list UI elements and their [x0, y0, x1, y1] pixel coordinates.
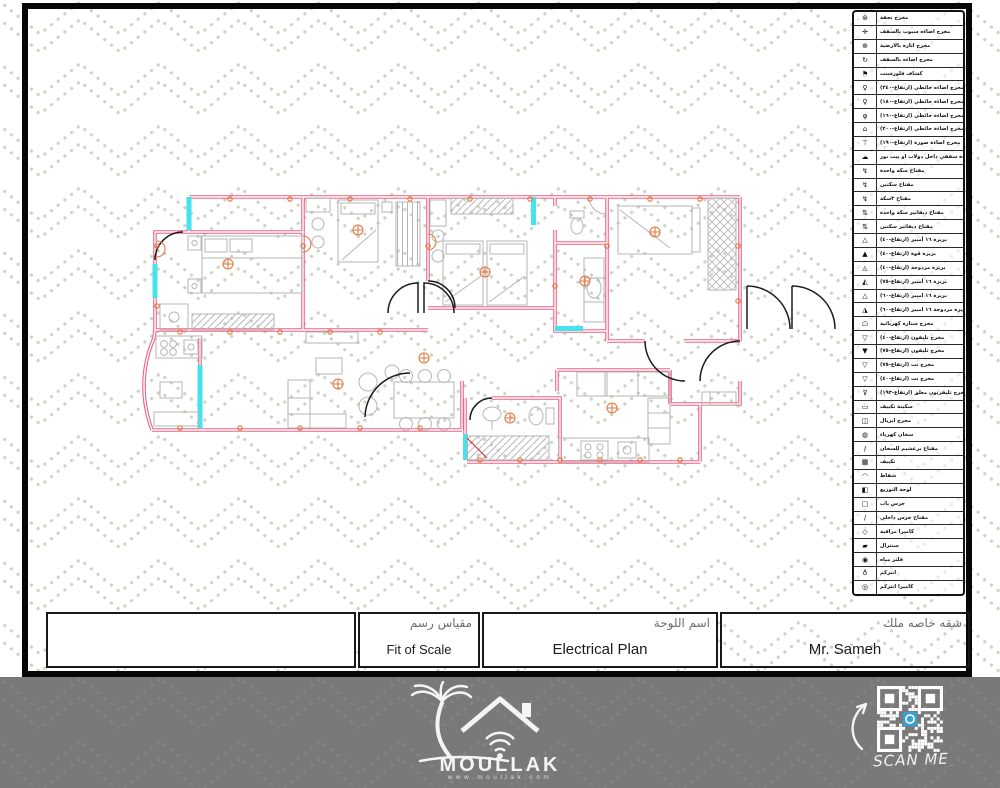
legend-label: بريزة قوة (ارتفاع-٤٠) [877, 248, 963, 261]
legend-row: ▲بريزة قوة (ارتفاع-٤٠) [854, 248, 963, 262]
aerial-outlet-icon: ◫ [854, 414, 877, 427]
legend-label: مخرج اضاءه حائطي (ارتفاع-٢٤٠) [877, 81, 963, 94]
legend-row: ⌂مخرج اضاءة حائطي (ارتفاع-٢٠٠) [854, 123, 963, 137]
legend-label: كاميرا مراقبة [877, 525, 963, 538]
owner-name: Mr. Sameh [722, 641, 968, 658]
legend-label: مخرج اضاءه بالسقف [877, 54, 963, 67]
legend-row: ▼مخرج تليفون (ارتفاع-٧٥) [854, 345, 963, 359]
legend-label: مخرج تليفزيون معلق (ارتفاع-١٩٣) [877, 387, 963, 400]
legend-row: ↯مفتاح سكتين [854, 179, 963, 193]
legend-label: مخرج انارة بالارضية [877, 40, 963, 53]
legend-row: ⊕مخرج انارة بالارضية [854, 40, 963, 54]
title-block-owner-cell: شقه خاصه ملك Mr. Sameh [720, 612, 970, 668]
legend-row: ↯مفتاح ٣سكة [854, 192, 963, 206]
switch-two-gang-icon: ↯ [854, 179, 877, 192]
legend-label: جرس باب [877, 498, 963, 511]
legend-row: ♀مخرج اضاءة حائطي (ارتفاع-١٨٠) [854, 95, 963, 109]
exhaust-fan-icon: ◠ [854, 470, 877, 483]
chandelier-outlet-icon: ⊛ [854, 12, 877, 25]
switch-one-gang-icon: ↯ [854, 165, 877, 178]
ac-isolator-icon: ▭ [854, 401, 877, 414]
legend-row: ◫مخرج ايريال [854, 414, 963, 428]
legend-row: ✛مخرج اضاءه سبوت بالسقف [854, 26, 963, 40]
legend-label: مخرج نت (ارتفاع-٤٠) [877, 373, 963, 386]
legend-label: مخرج ستارة كهربائية [877, 317, 963, 330]
legend-row: ▦تكييف [854, 456, 963, 470]
plan-furniture [154, 197, 736, 462]
central-icon: ▰ [854, 539, 877, 552]
sheet-name-value: Electrical Plan [484, 641, 716, 658]
double-socket-h40-icon: ◬ [854, 262, 877, 275]
legend-row: ⊤مخرج اضاءة صورة (ارتفاع-١٩٠) [854, 137, 963, 151]
legend-label: سخان كهرباء [877, 428, 963, 441]
legend-label: لوحة التوزيع [877, 484, 963, 497]
legend-label: مخرج تليفون (ارتفاع-٧٥) [877, 345, 963, 358]
phone-outlet-h75-icon: ▼ [854, 345, 877, 358]
legend-row: ◇كاميرا مراقبة [854, 525, 963, 539]
wall-sconce-symbol [157, 234, 436, 257]
fluorescent-lamp-icon: ⚑ [854, 68, 877, 81]
legend-row: ♁انتركم [854, 567, 963, 581]
curved-arrow-icon [846, 699, 880, 751]
owner-label-arabic: شقه خاصه ملك [884, 616, 962, 630]
legend-label: مفتاح سكتين [877, 179, 963, 192]
legend-label: مفتاح جرس داخلي [877, 512, 963, 525]
legend-label: كاميرا انتركم [877, 581, 963, 594]
legend-row: ☁مخرج اضاءة سقفي داخل دولاب او بيت نور [854, 151, 963, 165]
legend-row: △بريزة ١٦ امبير (ارتفاع-٦٠) [854, 290, 963, 304]
wall-light-200-icon: ⌂ [854, 123, 877, 136]
air-conditioner-icon: ▦ [854, 456, 877, 469]
legend-row: ⊛مخرج نجفة [854, 12, 963, 26]
legend-label: مفتاح ٣سكة [877, 192, 963, 205]
title-block-scale-cell: مقياس رسم Fit of Scale [358, 612, 480, 668]
moullak-logo: MOULLAK www.moullak.com [390, 681, 610, 781]
wall-light-160-icon: φ [854, 109, 877, 122]
legend-row: ◭بريزة ١٦ أمبير (ارتفاع-٧٥) [854, 276, 963, 290]
electric-curtain-outlet-icon: ☖ [854, 317, 877, 330]
palm-tree-icon [412, 682, 508, 761]
legend-label: مخرج اضاءة حائطي (ارتفاع-١٦٠) [877, 109, 963, 122]
legend-label: مفتاح سكة واحدة [877, 165, 963, 178]
legend-row: ▰سنترال [854, 539, 963, 553]
phone-outlet-h40-icon: ▽ [854, 331, 877, 344]
legend-row: ∕مفتاح جرس داخلي [854, 512, 963, 526]
legend-label: مخرج تليفون (ارتفاع-٤٠) [877, 331, 963, 344]
heater-switch-icon: ∕ [854, 442, 877, 455]
legend-label: تكييف [877, 456, 963, 469]
legend-table: ⊛مخرج نجفة✛مخرج اضاءه سبوت بالسقف⊕مخرج ا… [852, 10, 965, 596]
legend-label: بريزة ١٦ امبير (ارتفاع-٦٠) [877, 290, 963, 303]
cctv-camera-icon: ◇ [854, 525, 877, 538]
legend-row: ☖مخرج ستارة كهربائية [854, 317, 963, 331]
legend-row: ◠شفاط [854, 470, 963, 484]
legend-row: ◍سخان كهرباء [854, 428, 963, 442]
legend-label: مفتاح ديفاتير سكتين [877, 220, 963, 233]
legend-label: مخرج نجفة [877, 12, 963, 25]
door-bell-icon: ▢ [854, 498, 877, 511]
legend-label: بريزة مزدوجة (ارتفاع-٤٠) [877, 262, 963, 275]
legend-row: ↻مخرج اضاءه بالسقف [854, 54, 963, 68]
legend-row: ◧لوحة التوزيع [854, 484, 963, 498]
legend-label: كشاف فلورسنت [877, 68, 963, 81]
wall-tv-outlet-icon: ⊽ [854, 387, 877, 400]
title-block-empty-cell [46, 612, 356, 668]
legend-label: فلتر مياه [877, 553, 963, 566]
floor-plan [140, 186, 840, 481]
legend-row: ▭سكينة تكييف [854, 401, 963, 415]
legend-label: مخرج اضاءة صورة (ارتفاع-١٩٠) [877, 137, 963, 150]
power-socket-h40-icon: ▲ [854, 248, 877, 261]
qr-center-icon [903, 712, 917, 726]
legend-row: ▽مخرج نت (ارتفاع-٤٠) [854, 373, 963, 387]
scale-label-arabic: مقياس رسم [410, 616, 472, 630]
legend-label: مخرج ايريال [877, 414, 963, 427]
socket-16a-h40-icon: △ [854, 234, 877, 247]
wall-light-240-icon: ♀ [854, 81, 877, 94]
legend-row: ▢جرس باب [854, 498, 963, 512]
legend-row: ⊽مخرج تليفزيون معلق (ارتفاع-١٩٣) [854, 387, 963, 401]
legend-row: ▽مخرج تليفون (ارتفاع-٤٠) [854, 331, 963, 345]
legend-label: مخرج اضاءة سقفي داخل دولاب او بيت نور [877, 151, 963, 164]
legend-row: ⇅مفتاح ديفاتير سكة واحدة [854, 206, 963, 220]
net-outlet-h40-icon: ▽ [854, 373, 877, 386]
legend-label: بريزة مزدوجة ١٦ امبير (ارتفاع-٦٠) [877, 303, 963, 316]
scale-value: Fit of Scale [360, 642, 478, 657]
water-filter-icon: ◉ [854, 553, 877, 566]
legend-label: مفتاح برغشيم للسخان [877, 442, 963, 455]
distribution-board-icon: ◧ [854, 484, 877, 497]
legend-label: بريزة ١٦ أمبير (ارتفاع-٤٠) [877, 234, 963, 247]
ceiling-light-outlet-icon: ↻ [854, 54, 877, 67]
two-way-switch-one-icon: ⇅ [854, 206, 877, 219]
legend-label: سكينة تكييف [877, 401, 963, 414]
double-socket-16a-icon: ◮ [854, 303, 877, 316]
legend-row: ◮بريزة مزدوجة ١٦ امبير (ارتفاع-٦٠) [854, 303, 963, 317]
two-way-switch-two-icon: ⇅ [854, 220, 877, 233]
legend-row: ◎كاميرا انتركم [854, 581, 963, 594]
indoor-bell-switch-icon: ∕ [854, 512, 877, 525]
legend-row: ↯مفتاح سكة واحدة [854, 165, 963, 179]
scan-me-label: SCAN ME [866, 749, 957, 770]
intercom-camera-icon: ◎ [854, 581, 877, 594]
net-outlet-h75-icon: ▽ [854, 359, 877, 372]
sheet-name-label-arabic: اسم اللوحة [654, 616, 710, 630]
legend-label: مخرج اضاءه سبوت بالسقف [877, 26, 963, 39]
legend-row: ◉فلتر مياه [854, 553, 963, 567]
legend-label: انتركم [877, 567, 963, 580]
legend-row: ⇅مفتاح ديفاتير سكتين [854, 220, 963, 234]
legend-row: φمخرج اضاءة حائطي (ارتفاع-١٦٠) [854, 109, 963, 123]
footer-bar: MOULLAK www.moullak.com SCAN ME [0, 677, 1000, 788]
qr-code [877, 686, 943, 752]
wall-light-180-icon: ♀ [854, 95, 877, 108]
house-roof-icon [462, 699, 538, 758]
title-block-sheet-name-cell: اسم اللوحة Electrical Plan [482, 612, 718, 668]
legend-row: △بريزة ١٦ أمبير (ارتفاع-٤٠) [854, 234, 963, 248]
legend-label: شفاط [877, 470, 963, 483]
legend-row: ◬بريزة مزدوجة (ارتفاع-٤٠) [854, 262, 963, 276]
legend-label: مخرج نت (ارتفاع-٧٥) [877, 359, 963, 372]
socket-16a-h75-icon: ◭ [854, 276, 877, 289]
intercom-icon: ♁ [854, 567, 877, 580]
legend-label: سنترال [877, 539, 963, 552]
closet-ceiling-light-icon: ☁ [854, 151, 877, 164]
legend-label: مفتاح ديفاتير سكة واحدة [877, 206, 963, 219]
socket-16a-h60-icon: △ [854, 290, 877, 303]
ceiling-spot-light-icon: ✛ [854, 26, 877, 39]
picture-light-190-icon: ⊤ [854, 137, 877, 150]
legend-row: ∕مفتاح برغشيم للسخان [854, 442, 963, 456]
brand-text: MOULLAK [440, 754, 561, 776]
legend-row: ▽مخرج نت (ارتفاع-٧٥) [854, 359, 963, 373]
legend-row: ♀مخرج اضاءه حائطي (ارتفاع-٢٤٠) [854, 81, 963, 95]
switch-three-gang-icon: ↯ [854, 192, 877, 205]
legend-label: مخرج اضاءة حائطي (ارتفاع-٢٠٠) [877, 123, 963, 136]
floor-lighting-icon: ⊕ [854, 40, 877, 53]
website-text: www.moullak.com [447, 774, 553, 781]
water-heater-icon: ◍ [854, 428, 877, 441]
legend-label: بريزة ١٦ أمبير (ارتفاع-٧٥) [877, 276, 963, 289]
legend-row: ⚑كشاف فلورسنت [854, 68, 963, 82]
ceiling-fan-symbol [223, 225, 660, 423]
legend-label: مخرج اضاءة حائطي (ارتفاع-١٨٠) [877, 95, 963, 108]
